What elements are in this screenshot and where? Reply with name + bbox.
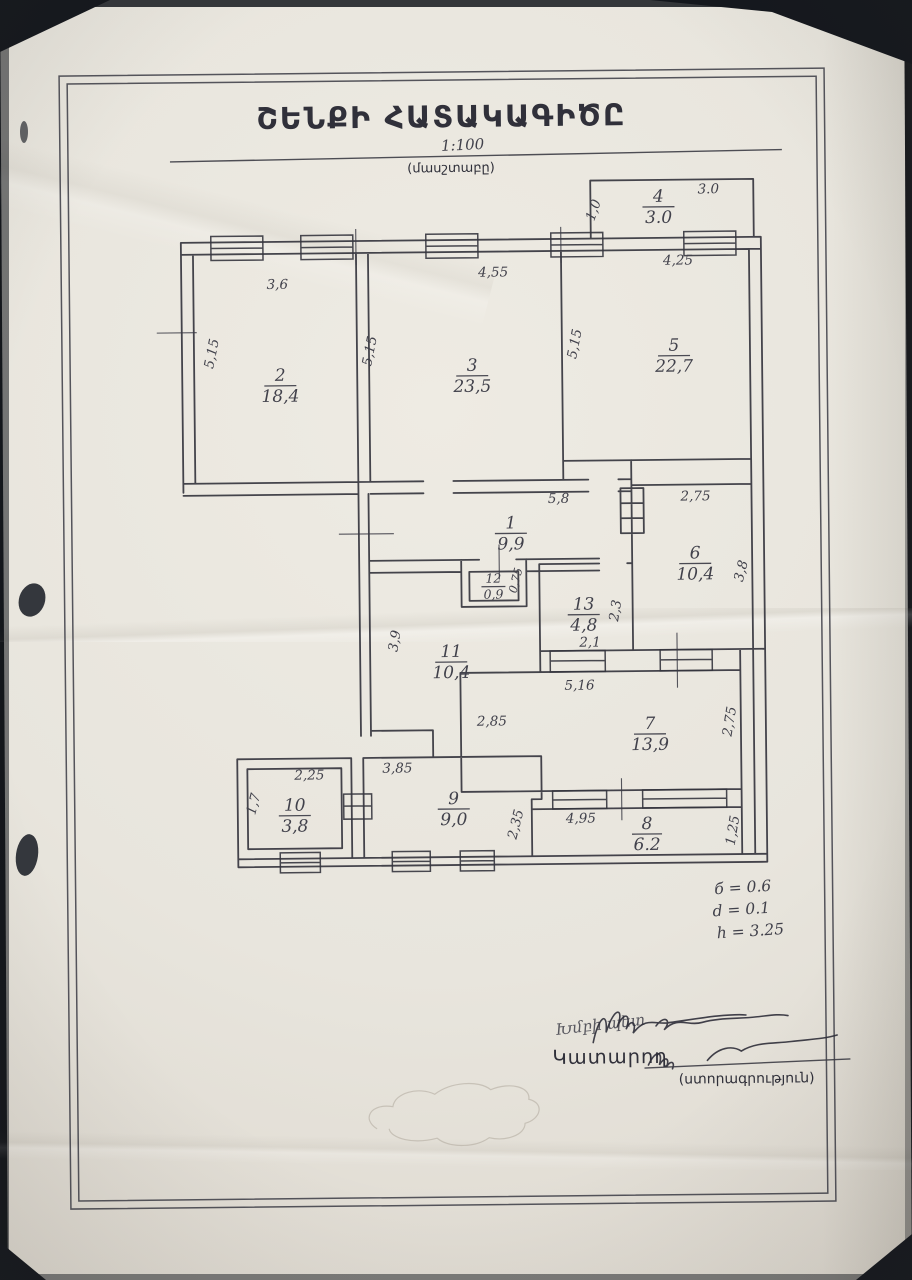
room-label-11: 11 10,4	[432, 642, 470, 683]
room-number: 7	[644, 714, 655, 734]
room-label-10: 10 3,8	[281, 796, 309, 837]
signature-caption: (ստորագրություն)	[679, 1070, 815, 1087]
dim-room11-width: 2,85	[476, 713, 507, 729]
room-area: 13,9	[631, 735, 669, 755]
note-line-3: h = 3.25	[716, 920, 784, 942]
room-number: 9	[448, 789, 459, 809]
room-number: 4	[652, 187, 664, 207]
dim-room3-width: 4,55	[477, 264, 508, 280]
dim-room11-height: 3,9	[385, 629, 404, 653]
scale-caption: (մասշտաբը)	[407, 161, 495, 177]
signature-line	[644, 1059, 850, 1068]
signature-block: Խմբի պետ Կատարող (ստորագրություն)	[552, 1009, 851, 1089]
dim-room9-width: 3,85	[382, 760, 412, 776]
room-number: 5	[668, 336, 679, 356]
room-area: 10,4	[676, 564, 714, 584]
executor-label: Կատարող	[552, 1045, 668, 1069]
printed-content: ՇԵՆՔԻ ՀԱՏԱԿԱԳԻԾԸ 1:100 (մասշտաբը) 1 9,9 …	[59, 68, 852, 1209]
page-title: ՇԵՆՔԻ ՀԱՏԱԿԱԳԻԾԸ	[256, 98, 626, 137]
dim-room4-width: 3.0	[697, 181, 719, 197]
room-area: 4,8	[569, 616, 597, 636]
dim-room7-height: 2,75	[719, 705, 740, 738]
room-number: 2	[274, 366, 286, 386]
dim-room2-width: 3,6	[266, 277, 288, 293]
note-line-2: d = 0.1	[712, 899, 770, 921]
room-number: 12	[485, 571, 501, 586]
dim-room12-height: 0,75	[506, 566, 526, 594]
dim-room7-width: 5,16	[564, 678, 595, 694]
scanned-photo: ՇԵՆՔԻ ՀԱՏԱԿԱԳԻԾԸ 1:100 (մասշտաբը) 1 9,9 …	[0, 0, 912, 1280]
room-area: 10,4	[432, 663, 470, 683]
photo-corner-shadows	[0, 0, 912, 1280]
room-area: 0,9	[483, 587, 503, 602]
dim-room6-width: 2,75	[679, 488, 710, 504]
dim-room10-width: 2,25	[293, 767, 324, 783]
room-label-12: 12 0,9	[483, 571, 503, 602]
scale-value: 1:100	[441, 135, 485, 155]
room-label-6: 6 10,4	[676, 543, 714, 584]
dim-room8-width: 4,95	[565, 811, 596, 827]
handwritten-role: Խմբի պետ	[555, 1011, 647, 1039]
room-number: 11	[440, 642, 462, 662]
dim-room5-width: 4,25	[662, 252, 693, 268]
dim-room9-height: 2,35	[504, 808, 527, 842]
room-area: 9,0	[440, 810, 467, 830]
dim-room2-height: 5,15	[201, 337, 223, 370]
room-label-13: 13 4,8	[569, 595, 598, 636]
room-label-2: 2 18,4	[261, 366, 299, 407]
room-area: 6.2	[634, 835, 661, 855]
room-area: 9,9	[497, 534, 524, 554]
note-line-1: б = 0.6	[714, 877, 772, 899]
room-number: 3	[467, 356, 478, 376]
room-label-1: 1 9,9	[497, 513, 525, 554]
room-area: 22,7	[654, 357, 693, 377]
room-label-7: 7 13,9	[631, 714, 669, 755]
window-symbols	[211, 231, 743, 873]
room-label-8: 8 6.2	[633, 814, 660, 855]
construction-notes: б = 0.6 d = 0.1 h = 3.25	[712, 877, 785, 943]
room-number: 10	[284, 796, 306, 816]
dim-room8-height: 1,25	[723, 814, 744, 846]
dim-room5-height: 5,15	[564, 328, 586, 361]
dim-room10-height: 1,7	[243, 791, 264, 816]
dim-room6-height: 3,8	[731, 558, 752, 583]
room-label-4: 4 3.0	[645, 187, 673, 228]
floor-plan-drawing: ՇԵՆՔԻ ՀԱՏԱԿԱԳԻԾԸ 1:100 (մասշտաբը) 1 9,9 …	[0, 0, 912, 1280]
dim-room13-height: 2,3	[606, 599, 625, 624]
dim-room13-width: 2,1	[578, 634, 601, 650]
room-number: 8	[641, 814, 652, 834]
dimension-ticks	[156, 226, 679, 825]
dimension-labels: 5,8 3,6 5,15 4,55 5,15 3.0 1,0 4,25 5,15…	[199, 181, 755, 852]
room-area: 3.0	[645, 208, 672, 228]
room-number: 6	[690, 543, 701, 563]
dim-room4-height: 1,0	[583, 197, 605, 223]
room-label-9: 9 9,0	[440, 789, 468, 830]
paper-stain	[369, 1083, 540, 1147]
room-label-5: 5 22,7	[654, 336, 693, 377]
room-number: 13	[573, 595, 595, 615]
dim-room1-width: 5,8	[548, 491, 570, 507]
room-label-3: 3 23,5	[452, 356, 491, 397]
dim-room3-height: 5,15	[359, 335, 381, 368]
binder-marks	[13, 121, 49, 877]
room-area: 23,5	[452, 377, 491, 397]
room-area: 18,4	[261, 387, 299, 407]
room-area: 3,8	[281, 817, 308, 837]
room-number: 1	[505, 513, 516, 533]
